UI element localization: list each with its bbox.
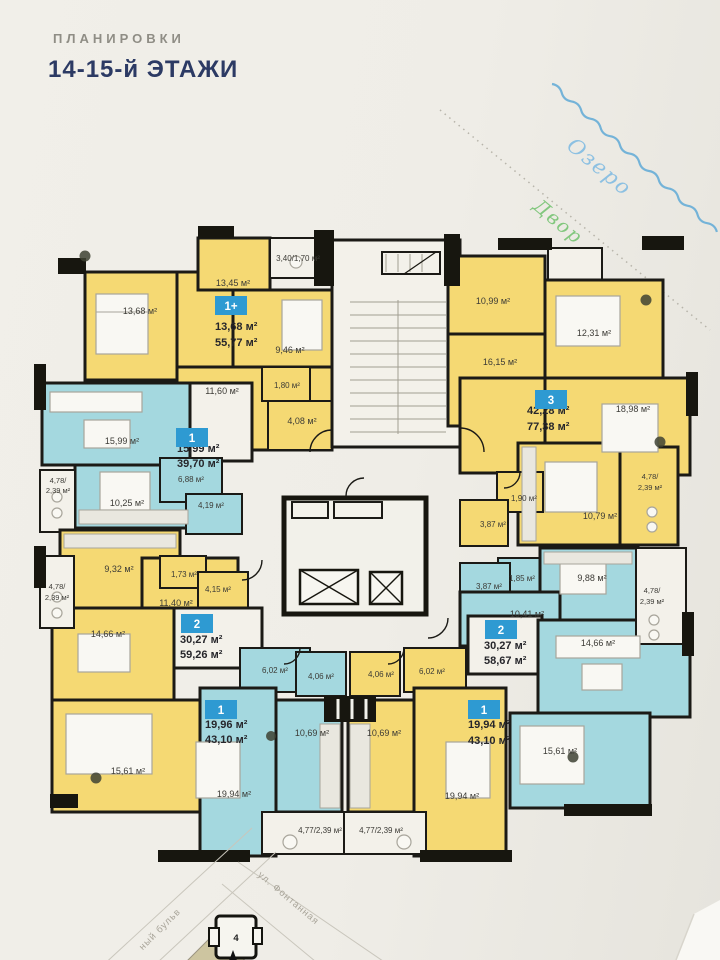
svg-text:1: 1 xyxy=(189,433,196,445)
room-area-label: 4,78/ xyxy=(50,476,68,485)
svg-text:1+: 1+ xyxy=(224,301,237,313)
room-10-99 xyxy=(448,256,545,334)
room-area-label: 3,40/1,70 м² xyxy=(276,254,320,263)
apartment-badge: 1 xyxy=(176,428,208,447)
apartment-badge: 2 xyxy=(485,620,517,639)
room-area-label: 18,98 м² xyxy=(616,404,650,414)
room-area-label: 10,99 м² xyxy=(476,296,510,306)
brochure-page: ПЛАНИРОВКИ 14-15-й ЭТАЖИ xyxy=(0,0,720,960)
balcony-right-lower xyxy=(636,548,686,644)
apartment-badge: 1 xyxy=(468,700,500,719)
room-area-label: 6,02 м² xyxy=(262,666,288,675)
svg-text:3: 3 xyxy=(548,395,554,407)
room-area-label: 1,85 м² xyxy=(509,574,535,583)
room-area-label: 4,15 м² xyxy=(205,585,231,594)
room-area-label: 4,06 м² xyxy=(368,670,394,679)
room-area-label: 19,94 м² xyxy=(445,791,479,801)
loggia-notch xyxy=(548,248,602,282)
apartment-area-stat: 55,77 м² xyxy=(215,337,258,349)
apartment-area-stat: 30,27 м² xyxy=(180,634,223,646)
room-area-label: 12,31 м² xyxy=(577,328,611,338)
room-area-label: 4,06 м² xyxy=(308,672,334,681)
room-area-label: 16,15 м² xyxy=(483,357,517,367)
room-area-label: 10,25 м² xyxy=(110,498,144,508)
page-curl xyxy=(676,900,720,960)
room-area-label: 11,40 м² xyxy=(159,598,193,608)
apartment-badge: 1 xyxy=(205,700,237,719)
room-area-label: 15,61 м² xyxy=(543,746,577,756)
apartment-area-stat: 19,94 м² xyxy=(468,719,511,731)
room-area-label: 9,32 м² xyxy=(104,564,133,574)
apartment-badge: 1+ xyxy=(215,296,247,315)
room-area-label: 15,99 м² xyxy=(105,436,139,446)
room-area-label: 10,69 м² xyxy=(295,728,329,738)
svg-text:1: 1 xyxy=(218,705,225,717)
room-area-label: 10,79 м² xyxy=(583,511,617,521)
room-area-label: 4,78/ xyxy=(49,582,67,591)
floor-plan-svg: 3,40/1,70 м²13,45 м²13,68 м²13,68 м²55,7… xyxy=(0,0,720,960)
room-area-label: 13,68 м² xyxy=(123,306,157,316)
room-area-label: 1,73 м² xyxy=(171,570,197,579)
apartment-badge: 2 xyxy=(181,614,213,633)
room-area-label: 4,08 м² xyxy=(287,416,316,426)
apartment-area-stat: 30,27 м² xyxy=(484,640,527,652)
room-area-label: 10,69 м² xyxy=(367,728,401,738)
room-area-label: 2,39 м² xyxy=(640,597,665,606)
room-area-label: 11,60 м² xyxy=(205,386,239,396)
room-area-label: 2,39 м² xyxy=(638,483,663,492)
vent-shaft xyxy=(324,696,376,722)
site-building-number: 4 xyxy=(233,933,239,944)
room-area-label: 3,87 м² xyxy=(476,582,502,591)
room-area-label: 19,94 м² xyxy=(217,789,251,799)
room-area-label: 9,46 м² xyxy=(275,345,304,355)
apartment-area-stat: 13,68 м² xyxy=(215,321,258,333)
elevator-core xyxy=(284,498,426,614)
svg-text:1: 1 xyxy=(481,705,488,717)
room-bath-4-19 xyxy=(186,494,242,534)
room-area-label: 4,78/ xyxy=(644,586,662,595)
room-area-label: 2,39 м² xyxy=(45,593,70,602)
room-area-label: 13,45 м² xyxy=(216,278,250,288)
room-area-label: 4,77/2,39 м² xyxy=(359,826,403,835)
room-area-label: 6,88 м² xyxy=(178,475,204,484)
room-area-label: 9,88 м² xyxy=(577,573,606,583)
room-area-label: 6,02 м² xyxy=(419,667,445,676)
apartment-area-stat: 59,26 м² xyxy=(180,649,223,661)
room-area-label: 14,66 м² xyxy=(581,638,615,648)
apartment-area-stat: 58,67 м² xyxy=(484,655,527,667)
apartment-area-stat: 77,38 м² xyxy=(527,421,570,433)
room-area-label: 15,61 м² xyxy=(111,766,145,776)
svg-text:2: 2 xyxy=(194,619,200,631)
apartment-area-stat: 43,10 м² xyxy=(468,735,511,747)
apartment-badge: 3 xyxy=(535,390,567,409)
room-area-label: 4,78/ xyxy=(642,472,660,481)
room-area-label: 10,41 м² xyxy=(510,609,544,619)
room-area-label: 4,77/2,39 м² xyxy=(298,826,342,835)
apartment-area-stat: 39,70 м² xyxy=(177,458,220,470)
room-area-label: 14,66 м² xyxy=(91,629,125,639)
svg-text:2: 2 xyxy=(498,625,504,637)
room-area-label: 1,80 м² xyxy=(274,381,300,390)
room-area-label: 1,90 м² xyxy=(511,494,537,503)
room-area-label: 2,39 м² xyxy=(46,486,71,495)
room-area-label: 4,19 м² xyxy=(198,501,224,510)
apartment-area-stat: 19,96 м² xyxy=(205,719,248,731)
apartment-area-stat: 43,10 м² xyxy=(205,734,248,746)
room-area-label: 3,87 м² xyxy=(480,520,506,529)
